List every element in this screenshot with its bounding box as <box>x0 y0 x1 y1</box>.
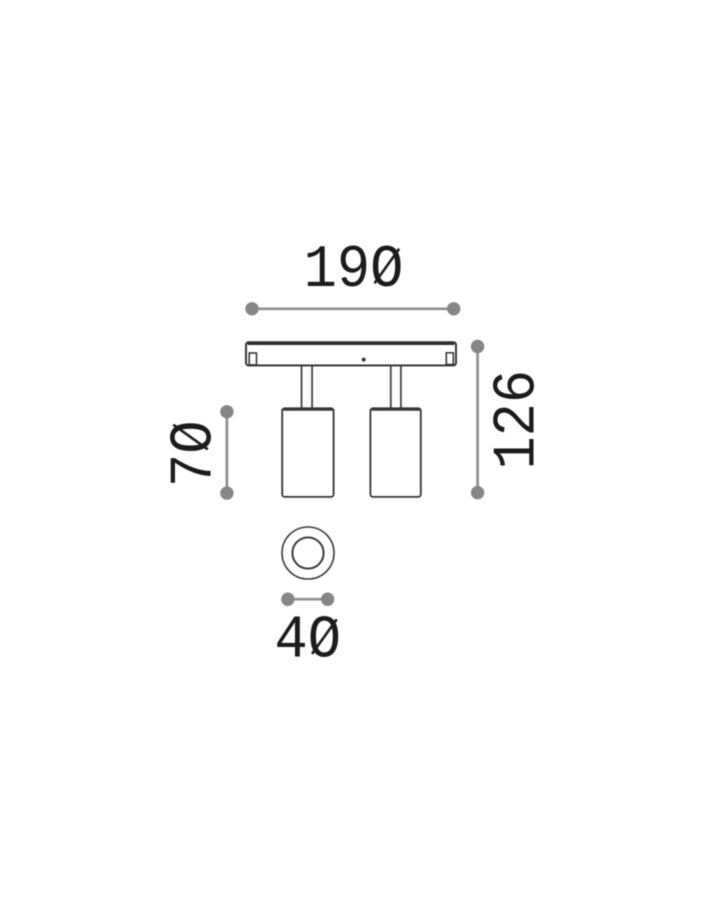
svg-text:19O: 19O <box>304 237 404 305</box>
svg-text:4O: 4O <box>274 608 340 676</box>
svg-text:7O: 7O <box>161 420 229 486</box>
svg-text:126: 126 <box>484 370 552 470</box>
